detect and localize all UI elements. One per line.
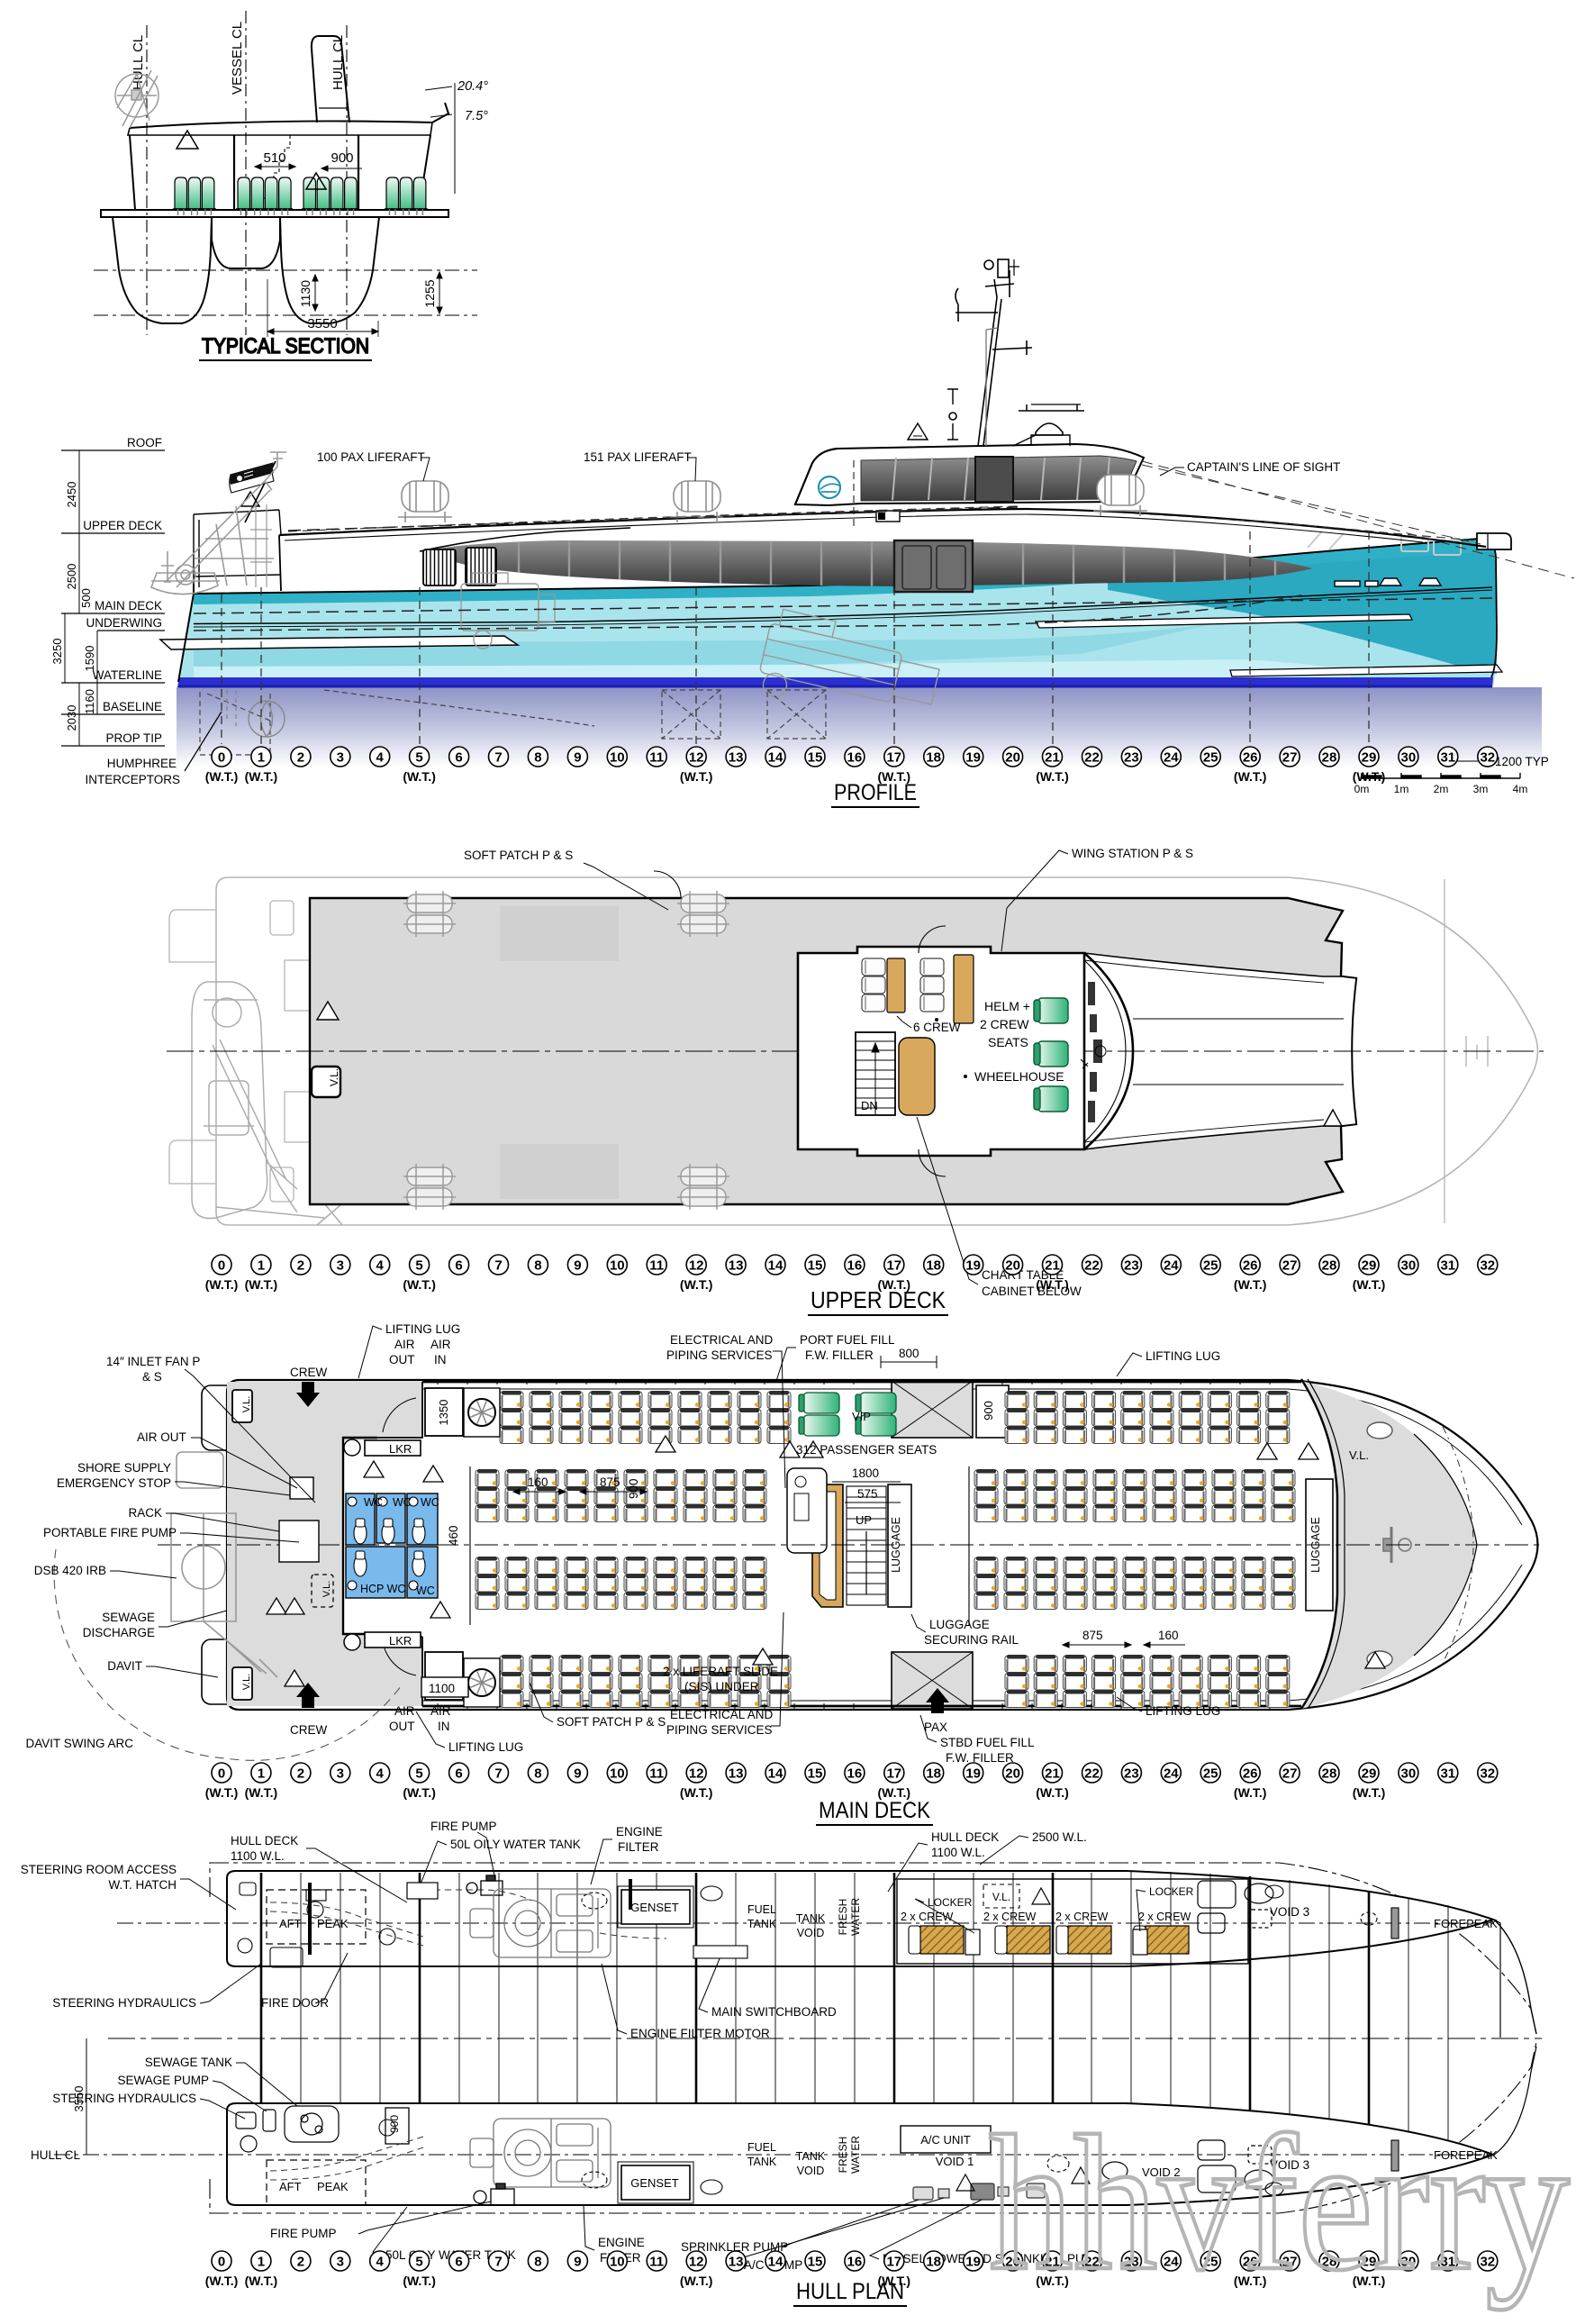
svg-text:WING STATION P & S: WING STATION P & S xyxy=(1072,847,1193,860)
svg-text:(W.T.): (W.T.) xyxy=(403,1785,436,1800)
svg-text:15: 15 xyxy=(808,750,823,766)
svg-text:8: 8 xyxy=(534,750,541,766)
svg-text:WC: WC xyxy=(393,1496,412,1509)
svg-text:900: 900 xyxy=(982,1401,995,1421)
svg-text:ELECTRICAL AND: ELECTRICAL AND xyxy=(670,1333,774,1347)
svg-text:HULL DECK: HULL DECK xyxy=(931,1830,999,1844)
svg-text:VOID: VOID xyxy=(797,1927,825,1939)
svg-text:25: 25 xyxy=(1203,750,1218,766)
svg-text:31: 31 xyxy=(1440,1258,1455,1274)
svg-text:HULL PLAN: HULL PLAN xyxy=(796,2279,904,2304)
svg-text:29: 29 xyxy=(1362,1766,1377,1782)
svg-text:11: 11 xyxy=(649,1258,664,1274)
svg-text:25: 25 xyxy=(1203,1766,1218,1782)
svg-text:DN: DN xyxy=(861,1099,878,1112)
svg-text:0: 0 xyxy=(218,1258,225,1274)
svg-text:7.5°: 7.5° xyxy=(465,109,488,123)
svg-text:575: 575 xyxy=(857,1487,878,1501)
svg-text:500: 500 xyxy=(79,588,93,608)
svg-text:27: 27 xyxy=(1282,1258,1298,1274)
svg-text:9: 9 xyxy=(574,750,581,766)
svg-text:14″ INLET FAN P: 14″ INLET FAN P xyxy=(106,1355,200,1368)
svg-text:30: 30 xyxy=(1401,1258,1417,1274)
svg-text:HULL CL: HULL CL xyxy=(31,2148,81,2162)
svg-text:WC: WC xyxy=(421,1496,439,1509)
svg-text:12: 12 xyxy=(689,1258,704,1274)
svg-text:7: 7 xyxy=(494,1258,502,1274)
svg-text:AIR: AIR xyxy=(394,1704,415,1718)
svg-text:29: 29 xyxy=(1362,1258,1377,1274)
svg-text:3: 3 xyxy=(337,1766,344,1782)
svg-text:W.T. HATCH: W.T. HATCH xyxy=(109,1878,177,1892)
svg-text:12: 12 xyxy=(689,750,704,766)
svg-text:PORT FUEL FILL: PORT FUEL FILL xyxy=(800,1333,895,1347)
svg-text:VOID: VOID xyxy=(797,2165,825,2177)
svg-text:28: 28 xyxy=(1322,750,1337,766)
svg-text:(W.T.): (W.T.) xyxy=(245,2274,278,2288)
svg-text:900: 900 xyxy=(331,150,353,166)
svg-text:9: 9 xyxy=(574,1258,581,1274)
svg-text:(W.T.): (W.T.) xyxy=(403,1277,436,1292)
svg-text:2500 W.L.: 2500 W.L. xyxy=(1032,1830,1087,1844)
svg-text:18: 18 xyxy=(926,1258,941,1274)
svg-text:FIRE PUMP: FIRE PUMP xyxy=(430,1820,497,1833)
svg-text:ELECTRICAL AND: ELECTRICAL AND xyxy=(670,1708,774,1721)
svg-text:UNDERWING: UNDERWING xyxy=(86,616,162,630)
svg-text:V.L.: V.L. xyxy=(322,1581,332,1598)
svg-text:3: 3 xyxy=(337,1258,344,1274)
svg-text:460: 460 xyxy=(447,1525,460,1546)
svg-text:FIRE PUMP: FIRE PUMP xyxy=(270,2227,337,2240)
svg-text:ENGINE: ENGINE xyxy=(616,1825,663,1838)
svg-text:3550: 3550 xyxy=(307,316,337,331)
svg-text:LOCKER: LOCKER xyxy=(928,1896,973,1909)
svg-text:CAPTAIN'S LINE OF SIGHT: CAPTAIN'S LINE OF SIGHT xyxy=(1187,460,1340,474)
svg-text:900: 900 xyxy=(627,1478,640,1499)
svg-text:13: 13 xyxy=(729,1766,744,1782)
svg-text:2: 2 xyxy=(297,750,304,766)
svg-text:(W.T.): (W.T.) xyxy=(1234,1277,1267,1292)
svg-text:DAVIT SWING ARC: DAVIT SWING ARC xyxy=(25,1737,133,1750)
svg-text:(W.T.): (W.T.) xyxy=(1036,769,1069,784)
svg-text:DSB 420 IRB: DSB 420 IRB xyxy=(34,1564,106,1577)
svg-text:FRESH: FRESH xyxy=(837,2137,849,2174)
svg-text:SEWAGE PUMP: SEWAGE PUMP xyxy=(117,2074,209,2087)
svg-text:V.L.: V.L. xyxy=(992,1891,1010,1903)
svg-text:29: 29 xyxy=(1362,750,1377,766)
svg-text:(W.T.): (W.T.) xyxy=(680,769,713,784)
svg-text:VOID 3: VOID 3 xyxy=(1270,1905,1309,1919)
svg-text:14: 14 xyxy=(768,2255,783,2270)
svg-text:V.L.: V.L. xyxy=(1349,1448,1369,1462)
svg-text:1: 1 xyxy=(258,750,265,766)
svg-text:510: 510 xyxy=(263,150,285,166)
svg-text:4: 4 xyxy=(376,2255,385,2270)
svg-text:8: 8 xyxy=(534,1766,541,1782)
svg-text:100 PAX LIFERAFT: 100 PAX LIFERAFT xyxy=(317,450,425,464)
svg-text:OUT: OUT xyxy=(389,1353,415,1366)
svg-text:(W.T.): (W.T.) xyxy=(403,769,436,784)
svg-text:13: 13 xyxy=(729,2255,744,2270)
svg-text:9: 9 xyxy=(574,1766,581,1782)
svg-text:(W.T.): (W.T.) xyxy=(680,1785,713,1800)
svg-text:22: 22 xyxy=(1084,1258,1100,1274)
svg-text:AIR: AIR xyxy=(394,1338,415,1351)
svg-text:20: 20 xyxy=(1005,1258,1020,1274)
svg-text:V.L.: V.L. xyxy=(241,1396,252,1413)
svg-text:8: 8 xyxy=(534,1258,541,1274)
svg-text:(W.T.): (W.T.) xyxy=(245,1785,278,1800)
svg-text:7: 7 xyxy=(494,1766,502,1782)
svg-text:PORTABLE FIRE PUMP: PORTABLE FIRE PUMP xyxy=(43,1526,177,1539)
svg-text:19: 19 xyxy=(965,2255,981,2270)
svg-text:HCP WC: HCP WC xyxy=(360,1583,405,1595)
svg-text:0m: 0m xyxy=(1354,783,1370,795)
svg-text:3: 3 xyxy=(337,2255,344,2270)
svg-text:WC: WC xyxy=(416,1584,435,1597)
svg-text:2 x CREW: 2 x CREW xyxy=(983,1911,1037,1923)
svg-text:SOFT PATCH P & S: SOFT PATCH P & S xyxy=(557,1715,666,1729)
svg-text:HULL DECK: HULL DECK xyxy=(231,1834,298,1847)
svg-text:HUMPHREE: HUMPHREE xyxy=(107,757,177,770)
svg-text:VOID 1: VOID 1 xyxy=(936,2155,974,2168)
svg-text:V.L.: V.L. xyxy=(241,1674,252,1691)
svg-text:5: 5 xyxy=(415,1258,422,1274)
svg-text:19: 19 xyxy=(965,1258,981,1274)
svg-text:RACK: RACK xyxy=(128,1506,162,1520)
svg-text:AFT: AFT xyxy=(279,1917,302,1930)
svg-text:3m: 3m xyxy=(1473,783,1489,795)
svg-text:WHEELHOUSE: WHEELHOUSE xyxy=(974,1069,1064,1084)
svg-text:4m: 4m xyxy=(1513,783,1528,795)
svg-text:WATER: WATER xyxy=(849,2136,862,2174)
svg-text:2: 2 xyxy=(297,1258,304,1274)
svg-text:18: 18 xyxy=(926,2255,941,2270)
svg-text:PROFILE: PROFILE xyxy=(834,780,917,805)
svg-text:9: 9 xyxy=(574,2255,581,2270)
svg-text:GENSET: GENSET xyxy=(630,1901,679,1914)
svg-text:LOCKER: LOCKER xyxy=(1149,1885,1194,1898)
svg-text:(W.T.): (W.T.) xyxy=(205,1277,239,1292)
svg-text:10: 10 xyxy=(610,2255,625,2270)
svg-text:2450: 2450 xyxy=(65,482,78,508)
svg-text:6 CREW: 6 CREW xyxy=(913,1021,961,1034)
svg-text:13: 13 xyxy=(729,750,744,766)
svg-text:26: 26 xyxy=(1243,1766,1258,1782)
svg-text:CREW: CREW xyxy=(290,1723,328,1737)
svg-text:1255: 1255 xyxy=(422,279,437,307)
svg-text:2: 2 xyxy=(297,2255,304,2270)
svg-text:4: 4 xyxy=(376,750,385,766)
svg-text:2 x CREW: 2 x CREW xyxy=(1055,1911,1109,1923)
svg-text:22: 22 xyxy=(1084,750,1100,766)
svg-text:WC: WC xyxy=(364,1496,383,1509)
svg-text:AIR: AIR xyxy=(430,1338,451,1351)
svg-text:25: 25 xyxy=(1203,1258,1218,1274)
svg-text:TANK: TANK xyxy=(747,1918,777,1930)
svg-text:(W.T.): (W.T.) xyxy=(680,2274,713,2288)
svg-text:DISCHARGE: DISCHARGE xyxy=(83,1626,155,1639)
svg-text:30: 30 xyxy=(1401,1766,1417,1782)
svg-text:4: 4 xyxy=(376,1766,385,1782)
svg-text:1590: 1590 xyxy=(83,646,96,672)
svg-text:11: 11 xyxy=(649,1766,664,1782)
svg-text:11: 11 xyxy=(649,2255,664,2270)
svg-text:EMERGENCY STOP: EMERGENCY STOP xyxy=(57,1476,171,1490)
svg-text:(W.T.): (W.T.) xyxy=(680,1277,713,1292)
svg-text:14: 14 xyxy=(768,1766,783,1782)
svg-text:26: 26 xyxy=(1243,1258,1258,1274)
svg-text:(W.T.): (W.T.) xyxy=(1353,1277,1386,1292)
svg-text:(W.T.): (W.T.) xyxy=(878,769,911,784)
svg-text:AFT: AFT xyxy=(279,2180,302,2193)
svg-text:22: 22 xyxy=(1084,1766,1100,1782)
svg-text:2m: 2m xyxy=(1434,783,1449,795)
svg-text:UP: UP xyxy=(856,1513,872,1527)
svg-text:1: 1 xyxy=(258,2255,265,2270)
svg-text:312 PASSENGER SEATS: 312 PASSENGER SEATS xyxy=(796,1443,937,1457)
svg-text:21: 21 xyxy=(1045,1258,1060,1274)
svg-text:(W.T.): (W.T.) xyxy=(205,2274,239,2288)
svg-text:23: 23 xyxy=(1124,1258,1139,1274)
svg-text:FRESH: FRESH xyxy=(837,1899,849,1936)
svg-text:0: 0 xyxy=(218,750,225,766)
svg-text:21: 21 xyxy=(1045,1766,1060,1782)
svg-text:20: 20 xyxy=(1005,1766,1020,1782)
svg-text:SOFT PATCH P & S: SOFT PATCH P & S xyxy=(464,849,573,862)
svg-text:31: 31 xyxy=(1440,1766,1455,1782)
svg-text:PIPING SERVICES: PIPING SERVICES xyxy=(666,1348,773,1362)
svg-text:800: 800 xyxy=(899,1347,919,1360)
svg-text:1350: 1350 xyxy=(437,1400,450,1426)
svg-text:15: 15 xyxy=(808,1258,823,1274)
svg-text:(W.T.): (W.T.) xyxy=(1036,1277,1069,1292)
svg-text:8: 8 xyxy=(534,2255,541,2270)
svg-text:6: 6 xyxy=(455,2255,462,2270)
svg-text:1100 W.L.: 1100 W.L. xyxy=(931,1846,985,1859)
svg-text:3250: 3250 xyxy=(50,639,64,665)
svg-text:1160: 1160 xyxy=(83,689,96,714)
svg-text:20: 20 xyxy=(1005,750,1020,766)
svg-text:16: 16 xyxy=(847,2255,863,2270)
svg-text:1: 1 xyxy=(258,1258,265,1274)
svg-text:AIR: AIR xyxy=(430,1704,451,1718)
svg-text:160: 160 xyxy=(528,1475,548,1489)
svg-text:FILTER: FILTER xyxy=(618,1840,659,1854)
svg-text:SECURING RAIL: SECURING RAIL xyxy=(924,1633,1019,1647)
svg-text:15: 15 xyxy=(808,1766,823,1782)
svg-text:VESSEL CL: VESSEL CL xyxy=(230,22,245,95)
svg-text:2 x CREW: 2 x CREW xyxy=(1138,1911,1191,1923)
svg-text:17: 17 xyxy=(886,750,901,766)
svg-text:5: 5 xyxy=(415,1766,422,1782)
svg-text:FIRE DOOR: FIRE DOOR xyxy=(261,1996,329,2010)
svg-text:SEWAGE TANK: SEWAGE TANK xyxy=(145,2056,232,2069)
svg-text:BASELINE: BASELINE xyxy=(103,700,162,713)
svg-text:F.W. FILLER: F.W. FILLER xyxy=(805,1348,874,1362)
svg-text:0: 0 xyxy=(218,1766,225,1782)
svg-text:(W.T.): (W.T.) xyxy=(403,2274,436,2288)
svg-text:MAIN DECK: MAIN DECK xyxy=(819,1798,930,1823)
svg-text:& S: & S xyxy=(142,1370,162,1384)
svg-text:17: 17 xyxy=(886,1766,901,1782)
svg-text:1100: 1100 xyxy=(429,1682,455,1695)
svg-text:A/C UNIT: A/C UNIT xyxy=(920,2133,971,2147)
svg-text:TANK: TANK xyxy=(796,1912,826,1925)
svg-text:INTERCEPTORS: INTERCEPTORS xyxy=(85,773,180,786)
svg-text:0: 0 xyxy=(218,2255,225,2270)
svg-text:SEWAGE: SEWAGE xyxy=(102,1611,155,1624)
svg-text:(W.T.): (W.T.) xyxy=(1353,769,1386,784)
svg-text:IN: IN xyxy=(434,1353,447,1366)
svg-text:2: 2 xyxy=(297,1766,304,1782)
svg-text:OUT: OUT xyxy=(389,1720,415,1733)
svg-text:PEAK: PEAK xyxy=(317,2180,349,2193)
svg-text:SHORE SUPPLY: SHORE SUPPLY xyxy=(77,1461,171,1475)
svg-text:(W.T.): (W.T.) xyxy=(1234,1785,1267,1800)
svg-text:50L OILY WATER TANK: 50L OILY WATER TANK xyxy=(450,1838,581,1851)
svg-text:20.4°: 20.4° xyxy=(457,79,488,94)
svg-text:12: 12 xyxy=(689,2255,704,2270)
svg-text:5: 5 xyxy=(415,750,422,766)
svg-text:LUGGAGE: LUGGAGE xyxy=(929,1618,990,1631)
svg-text:26: 26 xyxy=(1243,750,1258,766)
svg-text:PIPING SERVICES: PIPING SERVICES xyxy=(666,1723,773,1737)
svg-text:DAVIT: DAVIT xyxy=(107,1659,142,1673)
svg-text:ENGINE FILTER MOTOR: ENGINE FILTER MOTOR xyxy=(630,2027,770,2040)
svg-text:IN: IN xyxy=(438,1720,450,1733)
svg-text:151 PAX LIFERAFT: 151 PAX LIFERAFT xyxy=(584,450,692,464)
svg-text:F.W. FILLER: F.W. FILLER xyxy=(946,1751,1014,1765)
svg-text:(W.T.): (W.T.) xyxy=(205,769,239,784)
svg-text:32: 32 xyxy=(1480,750,1495,766)
svg-text:PROP TIP: PROP TIP xyxy=(105,731,162,745)
svg-text:hhvferry: hhvferry xyxy=(989,2095,1570,2310)
svg-text:LIFTING LUG: LIFTING LUG xyxy=(1146,1704,1220,1718)
svg-text:(W.T.): (W.T.) xyxy=(1036,1785,1069,1800)
svg-text:V.L.: V.L. xyxy=(328,1068,340,1086)
svg-text:SEATS: SEATS xyxy=(988,1035,1028,1049)
svg-text:(W.T.): (W.T.) xyxy=(1353,1785,1386,1800)
svg-text:HELM +: HELM + xyxy=(984,999,1030,1013)
svg-text:LKR: LKR xyxy=(389,1634,412,1648)
svg-text:STEERING ROOM ACCESS: STEERING ROOM ACCESS xyxy=(21,1863,177,1876)
svg-text:3: 3 xyxy=(337,750,344,766)
svg-text:19: 19 xyxy=(965,750,981,766)
svg-text:24: 24 xyxy=(1164,1766,1179,1782)
svg-text:VIP: VIP xyxy=(852,1410,871,1423)
svg-text:WATER: WATER xyxy=(849,1898,862,1936)
svg-text:12: 12 xyxy=(689,1766,704,1782)
svg-text:6: 6 xyxy=(455,1766,462,1782)
svg-text:(SIS) UNDER: (SIS) UNDER xyxy=(684,1680,759,1693)
svg-text:24: 24 xyxy=(1164,750,1179,766)
svg-text:18: 18 xyxy=(926,750,941,766)
svg-text:19: 19 xyxy=(965,1766,981,1782)
svg-text:875: 875 xyxy=(1082,1629,1103,1642)
svg-text:16: 16 xyxy=(847,750,863,766)
svg-text:WATERLINE: WATERLINE xyxy=(93,668,162,682)
svg-text:PEAK: PEAK xyxy=(317,1917,349,1930)
svg-text:28: 28 xyxy=(1322,1766,1337,1782)
svg-text:1100 W.L.: 1100 W.L. xyxy=(231,1849,285,1863)
svg-text:18: 18 xyxy=(926,1766,941,1782)
svg-text:TYPICAL SECTION: TYPICAL SECTION xyxy=(202,334,369,359)
svg-text:(W.T.): (W.T.) xyxy=(245,1277,278,1292)
svg-text:2030: 2030 xyxy=(65,705,78,731)
svg-text:(W.T.): (W.T.) xyxy=(245,769,278,784)
svg-text:16: 16 xyxy=(847,1258,863,1274)
svg-text:16: 16 xyxy=(847,1766,863,1782)
svg-text:(W.T.): (W.T.) xyxy=(205,1785,239,1800)
svg-text:ROOF: ROOF xyxy=(127,436,162,449)
svg-text:PAX: PAX xyxy=(924,1720,947,1734)
svg-text:3550: 3550 xyxy=(72,2086,86,2112)
svg-text:21: 21 xyxy=(1045,750,1060,766)
svg-text:23: 23 xyxy=(1124,1766,1139,1782)
svg-text:17: 17 xyxy=(886,2255,901,2270)
svg-text:STEERING HYDRAULICS: STEERING HYDRAULICS xyxy=(52,1996,196,2010)
svg-text:5: 5 xyxy=(415,2255,422,2270)
svg-text:2500: 2500 xyxy=(65,564,78,590)
svg-text:UPPER DECK: UPPER DECK xyxy=(811,1286,947,1313)
svg-text:10: 10 xyxy=(610,1258,625,1274)
svg-text:STBD FUEL FILL: STBD FUEL FILL xyxy=(940,1736,1035,1749)
svg-text:MAIN SWITCHBOARD: MAIN SWITCHBOARD xyxy=(711,2005,837,2019)
svg-text:LIFTING LUG: LIFTING LUG xyxy=(385,1322,460,1336)
svg-text:UPPER DECK: UPPER DECK xyxy=(83,519,162,532)
svg-text:14: 14 xyxy=(768,1258,783,1274)
svg-text:1130: 1130 xyxy=(298,280,312,307)
svg-text:FUEL: FUEL xyxy=(747,2141,776,2154)
svg-text:FUEL: FUEL xyxy=(747,1903,776,1916)
svg-text:AIR OUT: AIR OUT xyxy=(137,1430,186,1444)
svg-text:10: 10 xyxy=(610,1766,625,1782)
svg-text:13: 13 xyxy=(729,1258,744,1274)
svg-text:6: 6 xyxy=(455,750,462,766)
svg-text:4: 4 xyxy=(376,1258,385,1274)
svg-text:6: 6 xyxy=(455,1258,462,1274)
svg-text:GENSET: GENSET xyxy=(630,2176,679,2190)
svg-text:23: 23 xyxy=(1124,750,1139,766)
svg-text:1m: 1m xyxy=(1394,783,1409,795)
svg-text:1200 TYP: 1200 TYP xyxy=(1495,755,1549,768)
svg-text:27: 27 xyxy=(1282,750,1298,766)
svg-text:7: 7 xyxy=(494,2255,502,2270)
svg-text:TANK: TANK xyxy=(796,2150,826,2163)
svg-text:ENGINE: ENGINE xyxy=(598,2236,645,2249)
svg-text:7: 7 xyxy=(494,750,502,766)
svg-text:2 x LIFERAFT SLIDE: 2 x LIFERAFT SLIDE xyxy=(663,1665,778,1678)
svg-text:27: 27 xyxy=(1282,1766,1298,1782)
svg-text:160: 160 xyxy=(1158,1629,1179,1642)
svg-text:15: 15 xyxy=(808,2255,823,2270)
svg-text:MAIN DECK: MAIN DECK xyxy=(95,599,162,613)
svg-text:1800: 1800 xyxy=(852,1466,879,1480)
svg-text:TANK: TANK xyxy=(747,2156,777,2168)
svg-text:28: 28 xyxy=(1322,1258,1337,1274)
svg-text:24: 24 xyxy=(1164,1258,1179,1274)
svg-text:32: 32 xyxy=(1480,1766,1495,1782)
svg-text:875: 875 xyxy=(600,1475,620,1489)
svg-text:CREW: CREW xyxy=(290,1366,328,1379)
svg-text:LKR: LKR xyxy=(389,1442,412,1456)
svg-text:LIFTING LUG: LIFTING LUG xyxy=(448,1740,523,1754)
svg-text:10: 10 xyxy=(610,750,625,766)
svg-text:LIFTING LUG: LIFTING LUG xyxy=(1146,1349,1220,1363)
svg-text:32: 32 xyxy=(1480,1258,1495,1274)
svg-text:11: 11 xyxy=(649,750,664,766)
